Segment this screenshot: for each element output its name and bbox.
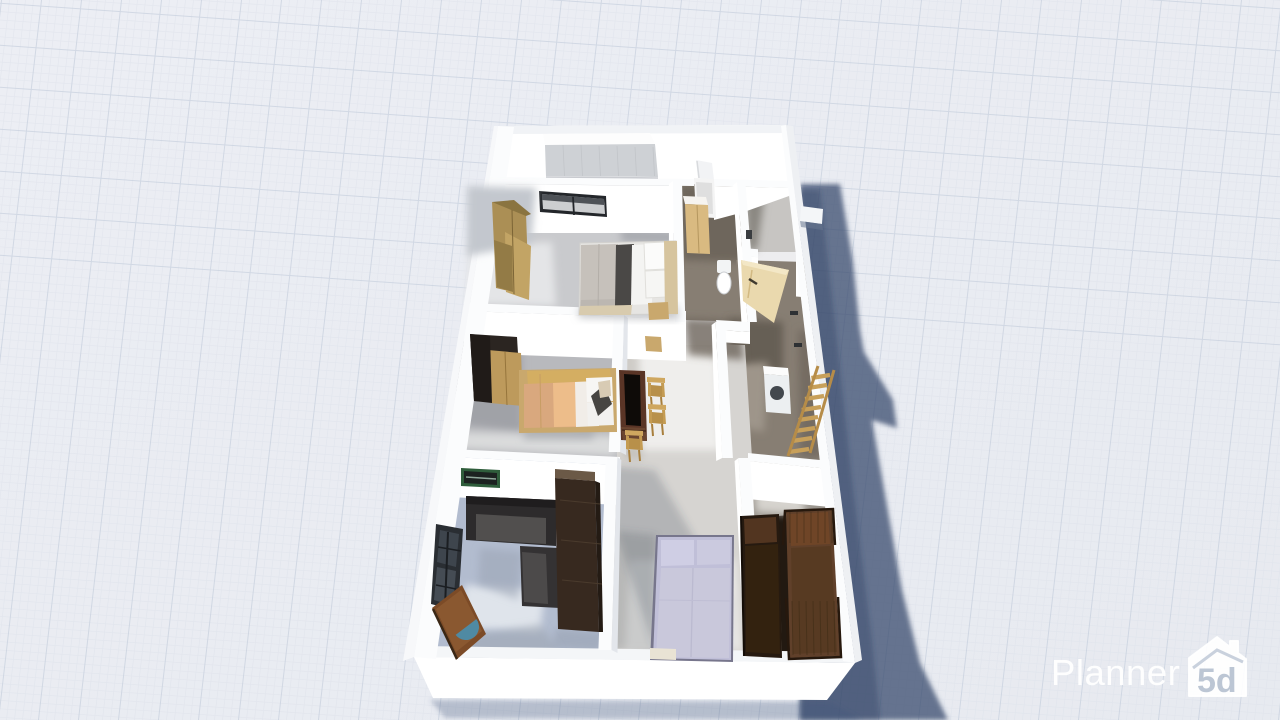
svg-text:5d: 5d — [1197, 662, 1237, 700]
svg-text:Planner: Planner — [1051, 652, 1180, 693]
